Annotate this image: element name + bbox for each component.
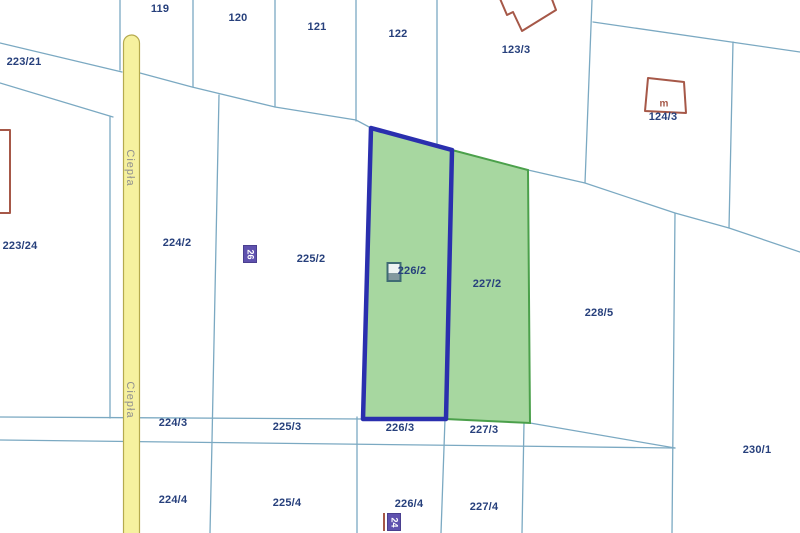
building-outline-top xyxy=(498,0,556,31)
parcel-226-2-selected[interactable] xyxy=(363,128,452,419)
parcel-227-2-highlight[interactable] xyxy=(446,150,530,423)
cadastral-map[interactable]: 119120121122123/3124/3223/21223/24224/22… xyxy=(0,0,800,533)
building-outlines xyxy=(0,0,686,213)
map-vector-layer xyxy=(0,0,800,533)
building-outline-left xyxy=(0,130,10,213)
building-outline-124-3 xyxy=(645,78,686,113)
road-strip xyxy=(124,35,140,533)
